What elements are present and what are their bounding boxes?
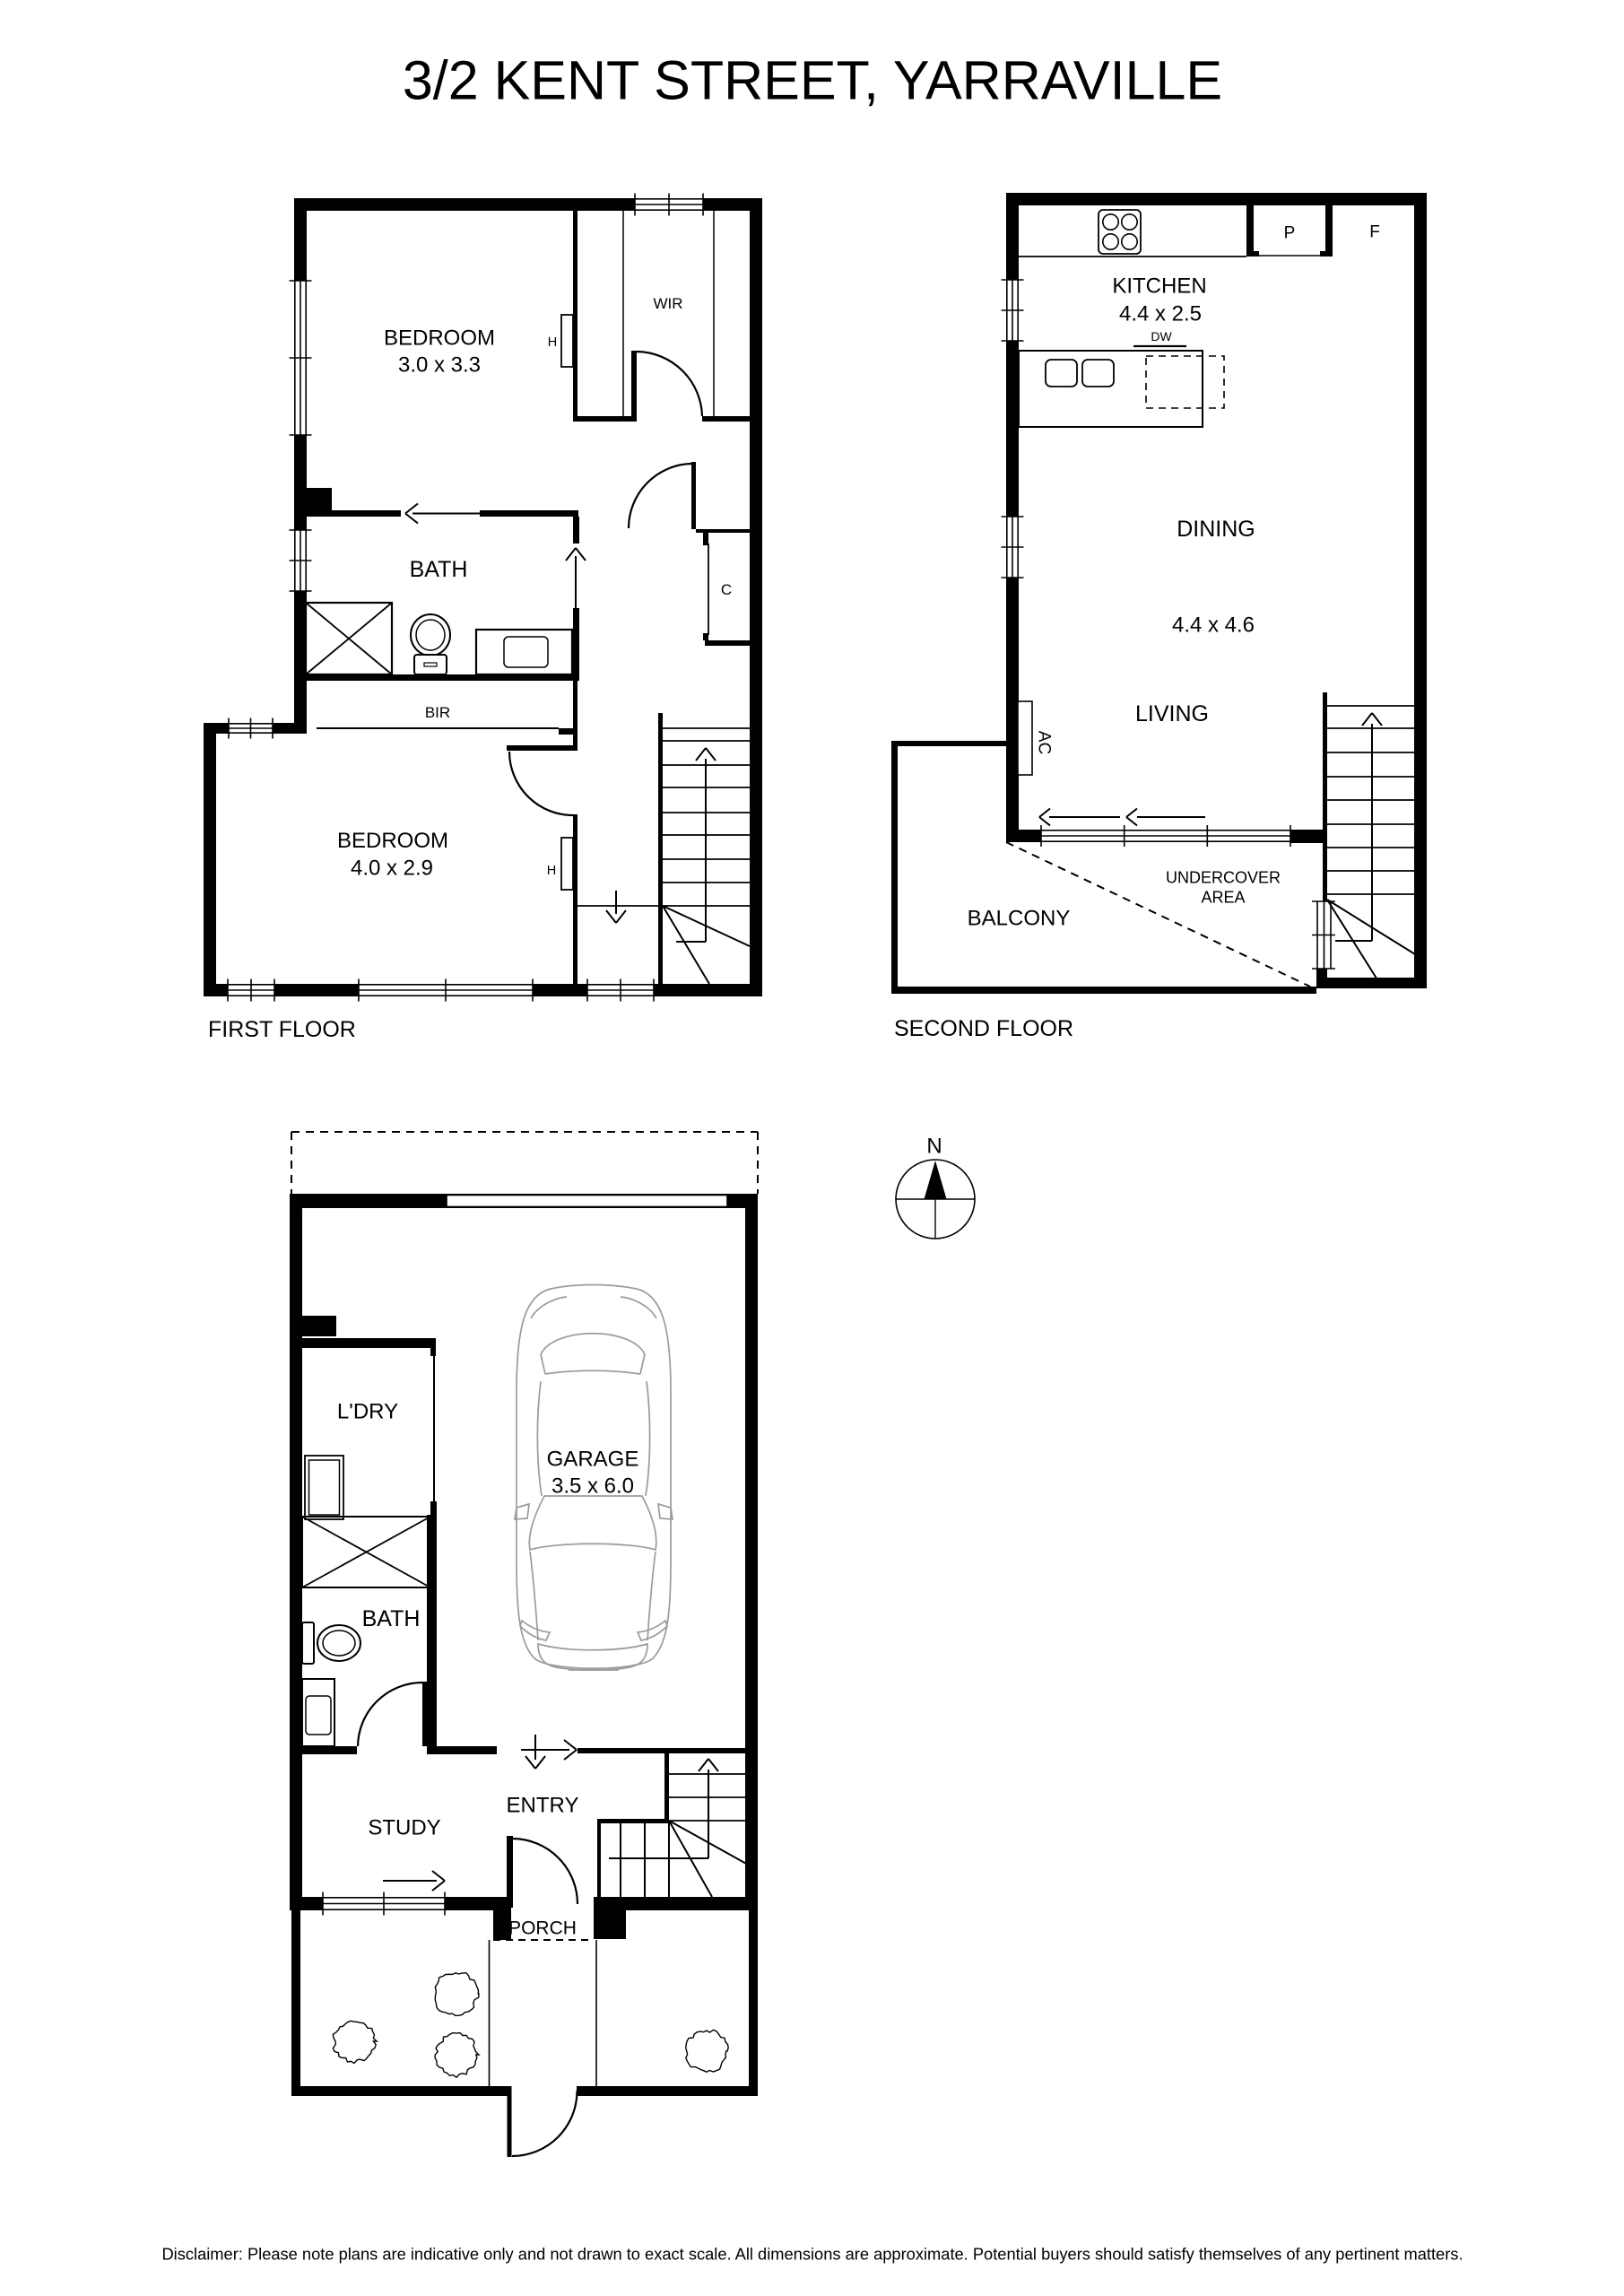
svg-text:ENTRY: ENTRY xyxy=(507,1794,579,1818)
svg-text:UNDERCOVER: UNDERCOVER xyxy=(1166,868,1281,886)
svg-text:BEDROOM: BEDROOM xyxy=(337,829,448,853)
svg-text:3/2 KENT STREET, YARRAVILLE: 3/2 KENT STREET, YARRAVILLE xyxy=(403,50,1222,111)
svg-text:F: F xyxy=(1369,223,1380,242)
svg-text:AREA: AREA xyxy=(1201,888,1245,906)
svg-text:H: H xyxy=(547,864,556,878)
svg-text:KITCHEN: KITCHEN xyxy=(1112,274,1206,299)
svg-text:FIRST FLOOR: FIRST FLOOR xyxy=(208,1017,356,1042)
svg-text:C: C xyxy=(721,581,732,598)
svg-text:SECOND FLOOR: SECOND FLOOR xyxy=(894,1016,1073,1041)
svg-text:N: N xyxy=(926,1135,942,1159)
svg-text:H: H xyxy=(548,335,557,350)
svg-text:BATH: BATH xyxy=(362,1606,421,1631)
svg-text:L'DRY: L'DRY xyxy=(337,1400,398,1424)
svg-text:GARAGE: GARAGE xyxy=(547,1448,639,1472)
svg-text:STUDY: STUDY xyxy=(368,1816,440,1840)
svg-text:3.0 x 3.3: 3.0 x 3.3 xyxy=(398,353,481,378)
svg-text:3.5 x 6.0: 3.5 x 6.0 xyxy=(551,1474,634,1499)
svg-text:AC: AC xyxy=(1035,731,1054,754)
svg-text:BEDROOM: BEDROOM xyxy=(384,326,495,351)
svg-text:4.4 x 2.5: 4.4 x 2.5 xyxy=(1119,302,1202,326)
svg-text:BALCONY: BALCONY xyxy=(968,907,1071,931)
svg-text:4.4 x 4.6: 4.4 x 4.6 xyxy=(1172,613,1255,638)
svg-text:PORCH: PORCH xyxy=(508,1918,577,1939)
svg-text:BIR: BIR xyxy=(425,704,450,721)
svg-text:DINING: DINING xyxy=(1177,517,1255,542)
svg-text:LIVING: LIVING xyxy=(1135,701,1209,726)
svg-text:4.0 x 2.9: 4.0 x 2.9 xyxy=(351,857,433,881)
svg-text:DW: DW xyxy=(1151,329,1172,344)
svg-text:BATH: BATH xyxy=(410,557,468,582)
svg-text:WIR: WIR xyxy=(653,295,682,312)
svg-text:P: P xyxy=(1284,224,1296,243)
svg-text:Disclaimer: Please note plans: Disclaimer: Please note plans are indica… xyxy=(161,2245,1463,2264)
